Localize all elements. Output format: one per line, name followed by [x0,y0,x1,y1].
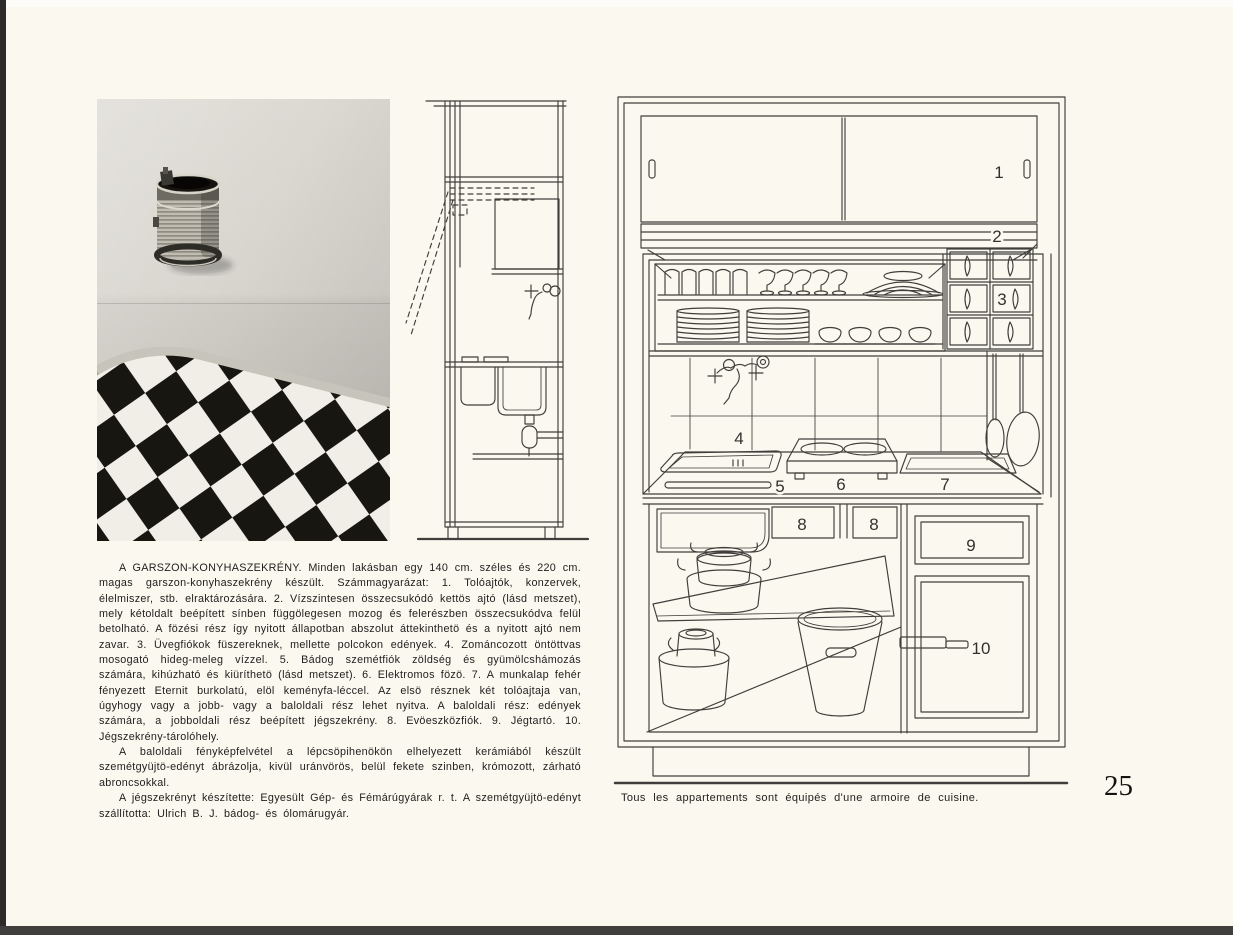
diagram-label-4: 4 [734,429,743,448]
kitchen-cabinet-front-diagram: 1 2 3 4 5 6 7 8 8 9 10 [613,92,1079,794]
diagram-label-9: 9 [966,536,975,555]
hanging-utensils [986,354,1042,468]
article-paragraph-2: A baloldali fényképfelvétel a lépcsöpihe… [99,745,581,791]
section-lower-shelf [473,454,563,459]
tumblers [665,270,747,295]
bowl-stack [863,272,943,298]
cabinet-section-diagram [404,95,596,550]
diagram-label-2: 2 [992,227,1001,246]
diagram-label-8a: 8 [797,515,806,534]
worktop-board [900,454,1016,473]
door-handle-right [1024,160,1030,178]
section-worktop [445,362,563,367]
bucket [798,608,882,716]
diagram-number-labels: 1 2 3 4 5 6 7 8 8 9 10 [734,163,1006,658]
lower-cupboard [643,504,1043,733]
waste-container [149,167,244,282]
folding-door-track-dashed [406,188,534,335]
spice-glass-drawers [943,249,1033,349]
section-top-shelf [445,177,563,182]
section-faucet [525,284,560,319]
sink [661,451,781,472]
diagram-label-1: 1 [994,163,1003,182]
waste-drawer-pull [665,482,771,488]
diagram-label-6: 6 [836,475,845,494]
section-door-panel [495,199,559,269]
scan-edge-top [6,0,1233,7]
plate-stacks [677,308,809,342]
electric-stove [787,439,897,479]
scan-edge-left [0,0,6,935]
section-basin-right [498,367,546,415]
checkered-floor [97,317,390,541]
diagram-label-5: 5 [775,477,784,496]
hanging-spoon [986,419,1004,457]
article-paragraph-3: A jégszekrényt készítette: Egyesült Gép-… [99,791,581,822]
folding-door-band [641,224,1037,260]
section-drain-trap [522,426,537,448]
cups [815,328,935,345]
french-caption: Tous les appartements sont équipés d'une… [621,792,1141,804]
scan-edge-bottom [0,926,1233,935]
fridge-door [900,576,1029,718]
pulled-out-panel [657,509,769,552]
sliding-doors-section [641,116,1037,222]
checkerboard-pattern [97,317,390,541]
lower-shelf [653,556,894,621]
can-latch [153,217,159,227]
page-number: 25 [1104,770,1133,803]
stem-glasses [759,270,847,295]
article-paragraph-1: A GARSZON-KONYHASZEKRÉNY. Minden lakásba… [99,561,581,745]
section-basin-left [461,367,495,405]
diagram-label-7: 7 [940,475,949,494]
plinth [615,747,1067,783]
door-handle-left [649,160,655,178]
wall-seam [97,303,390,304]
stacked-pots [678,543,771,613]
diagram-label-8b: 8 [869,515,878,534]
glass-shelves-compartment [649,264,1043,356]
milk-can [659,629,729,710]
diagram-label-10: 10 [972,639,991,658]
waste-container-photo [97,99,390,541]
diagram-label-3: 3 [997,290,1006,309]
article-text: A GARSZON-KONYHASZEKRÉNY. Minden lakásba… [99,561,581,822]
fridge-divider [901,504,907,733]
faucet [708,356,769,404]
